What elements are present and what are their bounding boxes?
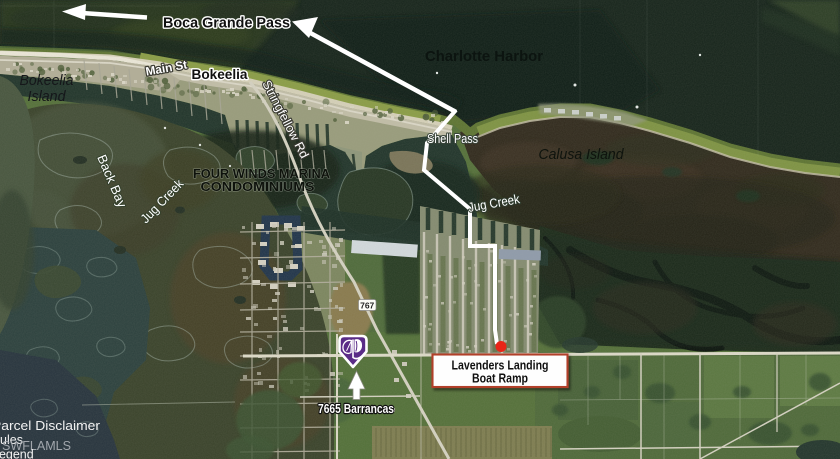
- svg-text:Boca Grande Pass: Boca Grande Pass: [163, 15, 290, 32]
- svg-text:7665 Barrancas: 7665 Barrancas: [318, 402, 394, 416]
- svg-text:Charlotte Harbor: Charlotte Harbor: [425, 48, 543, 65]
- svg-text:Boat Ramp: Boat Ramp: [472, 371, 528, 386]
- svg-text:FOUR WINDS MARINA: FOUR WINDS MARINA: [193, 167, 330, 181]
- svg-text:Shell Pass: Shell Pass: [427, 132, 478, 146]
- svg-text:Bokeelia: Bokeelia: [20, 73, 74, 89]
- svg-text:Parcel Disclaimer: Parcel Disclaimer: [0, 419, 100, 433]
- svg-text:Bokeelia: Bokeelia: [192, 67, 248, 82]
- svg-text:Island: Island: [28, 89, 67, 105]
- svg-text:767: 767: [360, 300, 374, 310]
- svg-text:Legend: Legend: [0, 448, 34, 459]
- svg-text:CONDOMINIUMS: CONDOMINIUMS: [201, 180, 315, 194]
- svg-text:Calusa Island: Calusa Island: [539, 147, 625, 163]
